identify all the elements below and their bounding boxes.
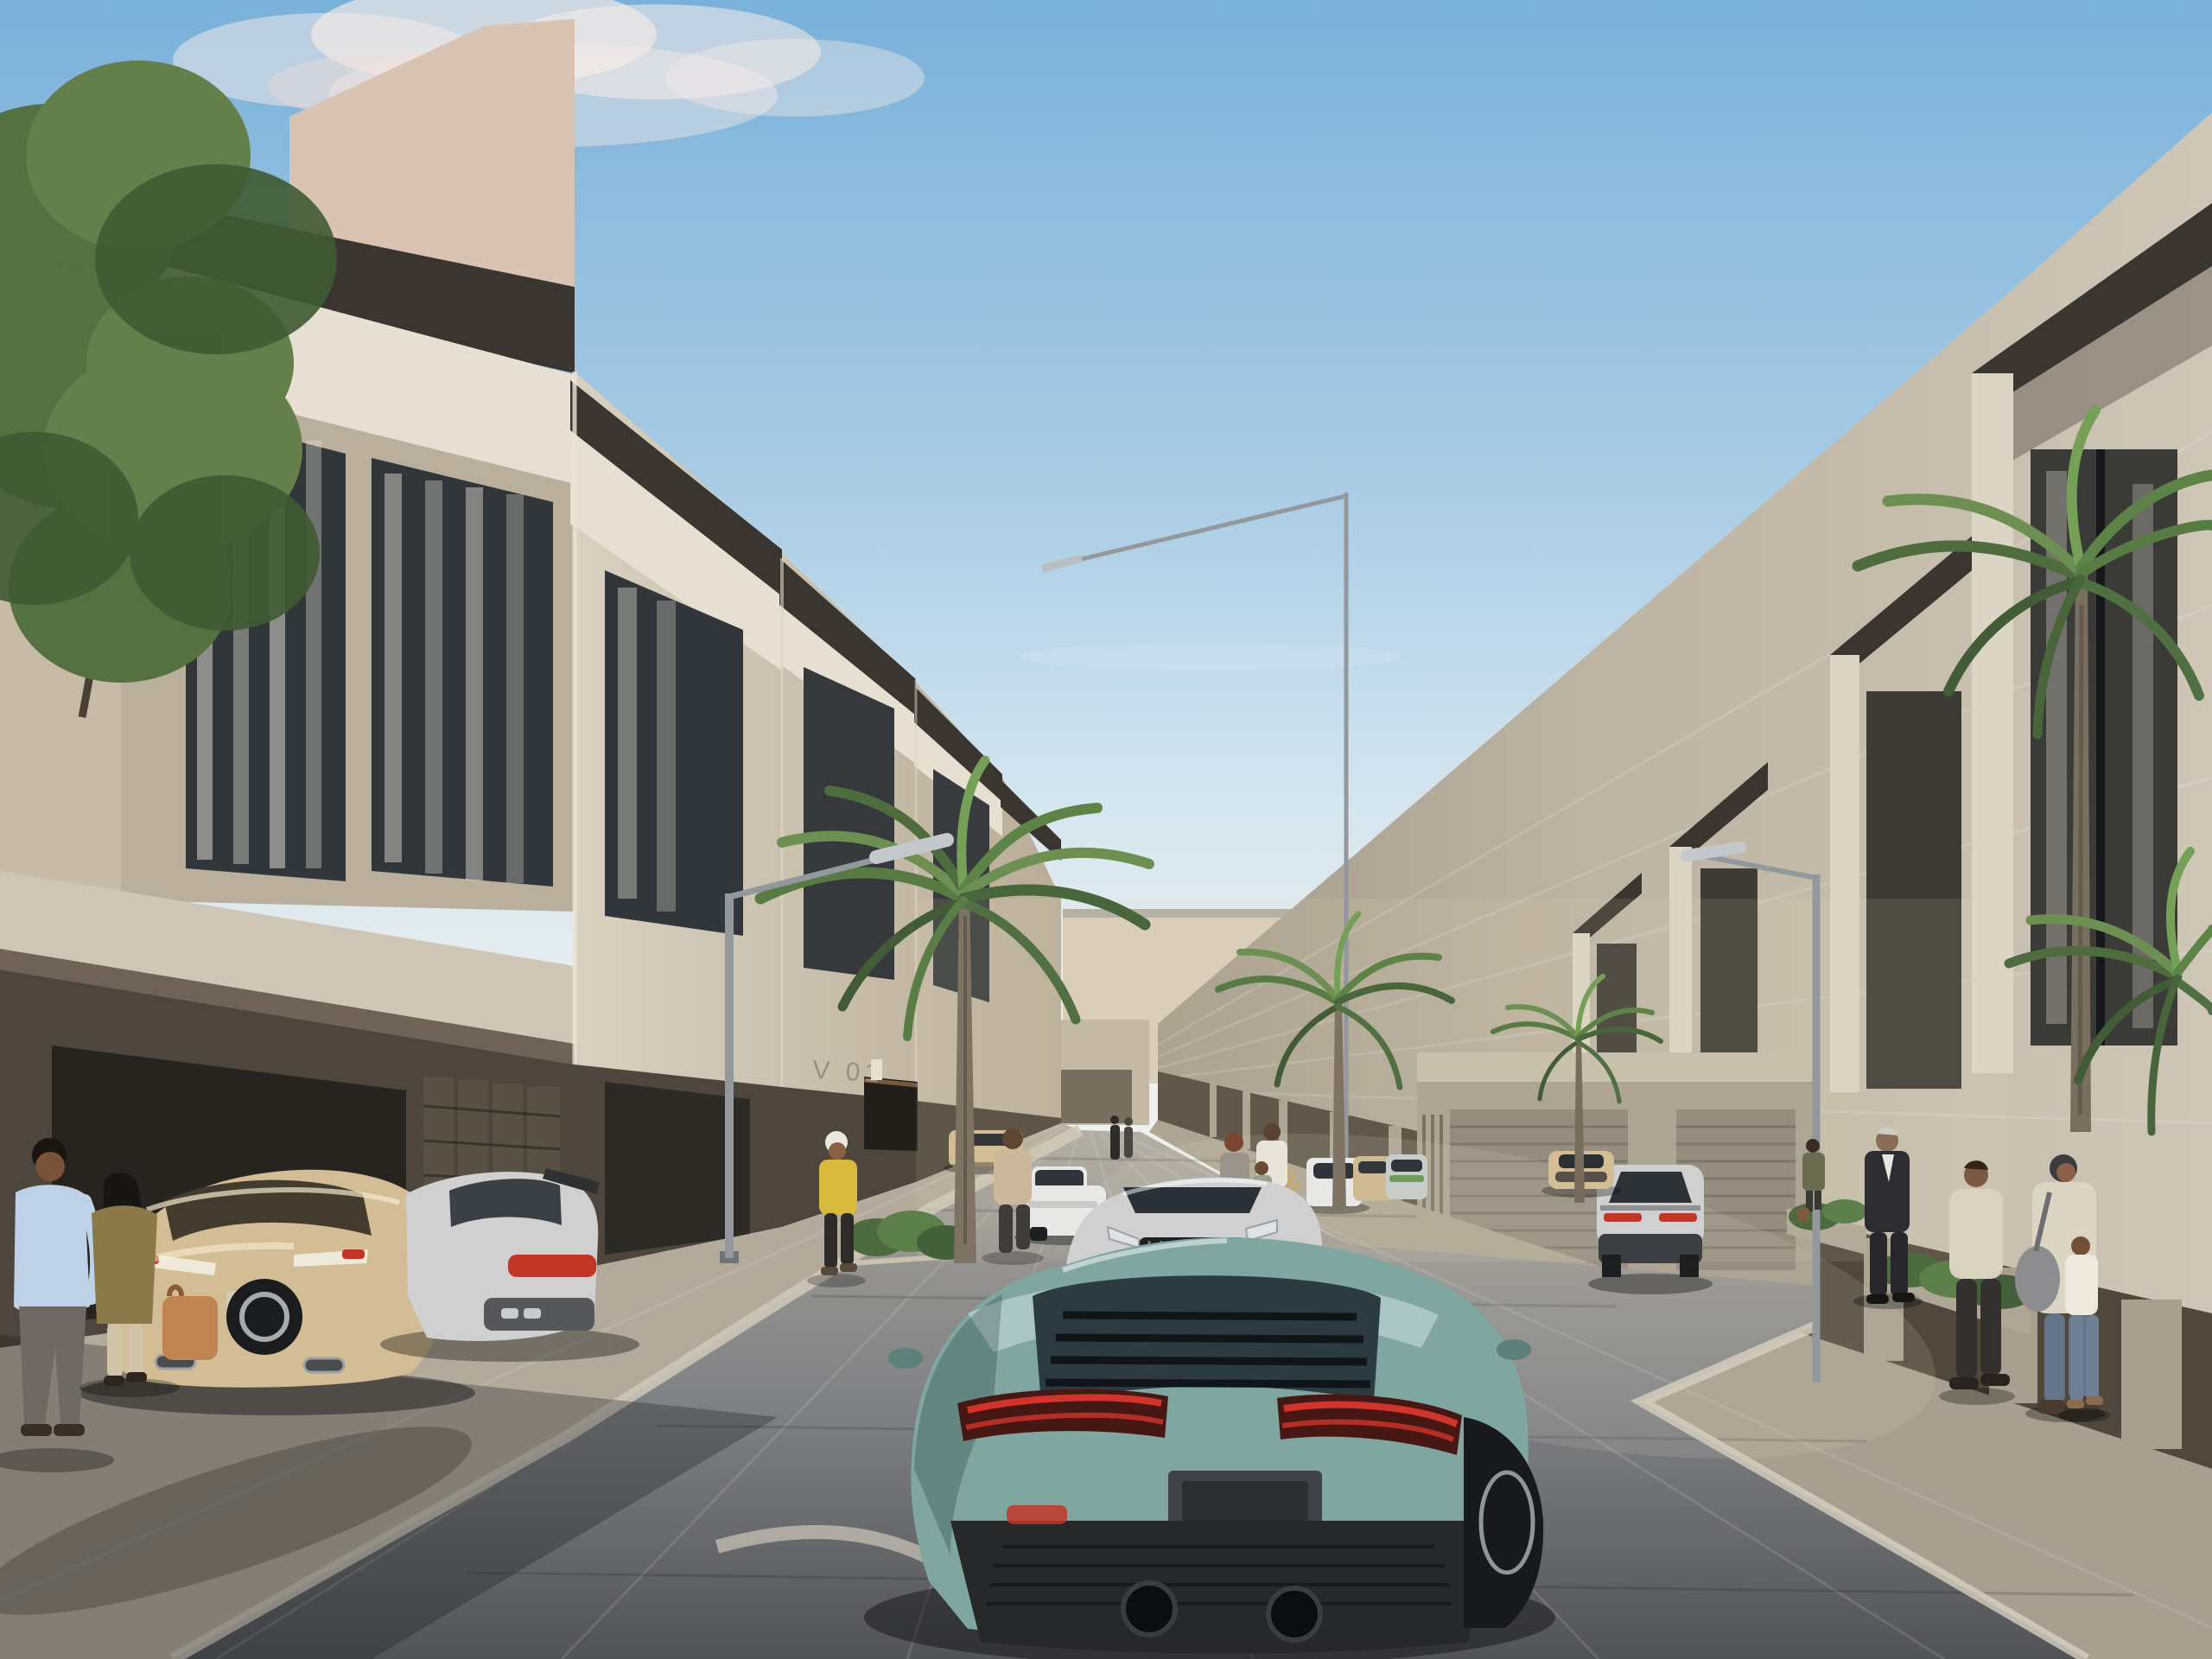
olive-coat	[92, 1205, 157, 1324]
render-viewport: V 01	[0, 0, 2212, 1659]
street-render: V 01	[0, 0, 2212, 1659]
unit-sign: V 01	[812, 1056, 884, 1088]
yellow-top	[819, 1160, 857, 1215]
lamp-head	[1687, 848, 1740, 855]
diffuser	[950, 1521, 1486, 1654]
cream-sweater	[1949, 1189, 2003, 1279]
gray-shoulder-bag	[2015, 1246, 2060, 1312]
tan-handbag	[162, 1296, 218, 1360]
blue-shirt	[14, 1185, 90, 1315]
villa3-window	[804, 667, 894, 980]
entry-sconce	[871, 1059, 882, 1080]
white-top	[2065, 1255, 2098, 1315]
entrance-niche	[864, 1077, 918, 1151]
